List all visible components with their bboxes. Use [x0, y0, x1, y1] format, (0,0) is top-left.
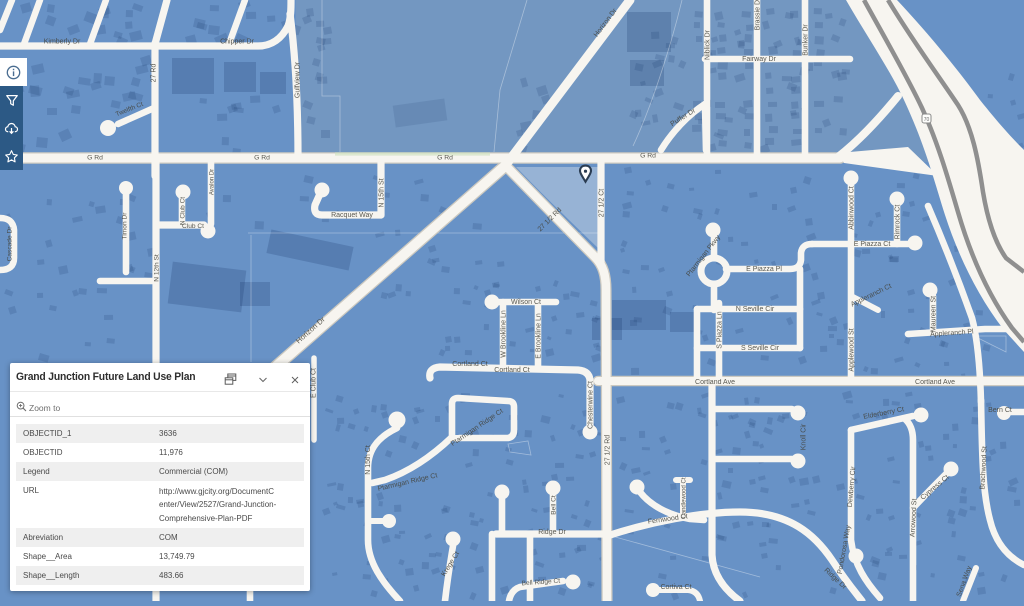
- svg-text:G Rd: G Rd: [87, 155, 103, 162]
- svg-text:N Club Ct: N Club Ct: [180, 197, 187, 225]
- svg-text:E Brookline Ln: E Brookline Ln: [536, 313, 543, 359]
- svg-text:Cortland Ct: Cortland Ct: [494, 367, 529, 374]
- svg-text:Timon Dr: Timon Dr: [122, 212, 129, 240]
- svg-text:W Brookline Ln: W Brookline Ln: [501, 310, 508, 358]
- svg-text:Chesterwine Ct: Chesterwine Ct: [588, 381, 595, 429]
- svg-text:G Rd: G Rd: [254, 155, 270, 162]
- svg-text:Cortland Ave: Cortland Ave: [915, 379, 955, 386]
- svg-text:S Seville Cir: S Seville Cir: [741, 345, 780, 352]
- svg-text:E Piazza Pl: E Piazza Pl: [746, 266, 782, 273]
- svg-text:Cortland Ave: Cortland Ave: [695, 379, 735, 386]
- svg-text:70: 70: [924, 117, 930, 123]
- svg-text:N 15th Ct: N 15th Ct: [365, 445, 372, 475]
- svg-text:Chipper Dr: Chipper Dr: [220, 39, 255, 46]
- svg-text:Avalon Dr: Avalon Dr: [210, 169, 216, 195]
- svg-text:Niblick Dr: Niblick Dr: [705, 29, 712, 60]
- svg-text:Cascade Dr: Cascade Dr: [7, 226, 14, 262]
- svg-text:S Piazza Ln: S Piazza Ln: [717, 311, 724, 348]
- svg-text:Cortiva Ct: Cortiva Ct: [660, 584, 691, 591]
- svg-text:Applewood St: Applewood St: [849, 328, 856, 371]
- svg-text:27 1/2 Rd: 27 1/2 Rd: [605, 435, 612, 465]
- svg-text:Kimberly Dr: Kimberly Dr: [44, 39, 81, 46]
- svg-text:Fairway Dr: Fairway Dr: [742, 56, 777, 63]
- svg-text:N 15th St: N 15th St: [379, 178, 386, 207]
- svg-text:Knoll Cir: Knoll Cir: [801, 423, 808, 450]
- svg-text:Ridge Dr: Ridge Dr: [538, 529, 566, 536]
- svg-text:N 12th St: N 12th St: [154, 254, 161, 282]
- svg-text:Abbinwood Ct: Abbinwood Ct: [849, 186, 856, 230]
- svg-text:Brassie Dr: Brassie Dr: [755, 0, 762, 30]
- svg-text:G Rd: G Rd: [437, 155, 453, 162]
- svg-text:27 Rd: 27 Rd: [151, 64, 158, 83]
- svg-text:Cortland Ct: Cortland Ct: [452, 361, 487, 368]
- svg-text:Candlewood Ct: Candlewood Ct: [682, 477, 688, 518]
- svg-text:Gulfview Dr: Gulfview Dr: [295, 61, 302, 98]
- svg-text:E Piazza Ct: E Piazza Ct: [854, 241, 891, 248]
- svg-text:G Rd: G Rd: [640, 153, 656, 160]
- svg-text:E Club Ct: E Club Ct: [311, 368, 318, 398]
- svg-text:Bunker Dr: Bunker Dr: [803, 24, 810, 56]
- svg-text:Rimrock Ct: Rimrock Ct: [895, 205, 902, 240]
- svg-text:N Seville Cir: N Seville Cir: [736, 306, 775, 313]
- svg-text:Racquet Way: Racquet Way: [331, 212, 373, 219]
- svg-text:Bern Ct: Bern Ct: [988, 407, 1012, 414]
- svg-text:27 1/2 Ct: 27 1/2 Ct: [599, 189, 606, 217]
- svg-text:Bell Ct: Bell Ct: [551, 495, 558, 515]
- svg-text:Maureen St: Maureen St: [931, 296, 938, 332]
- svg-text:Wilson Ct: Wilson Ct: [511, 299, 541, 306]
